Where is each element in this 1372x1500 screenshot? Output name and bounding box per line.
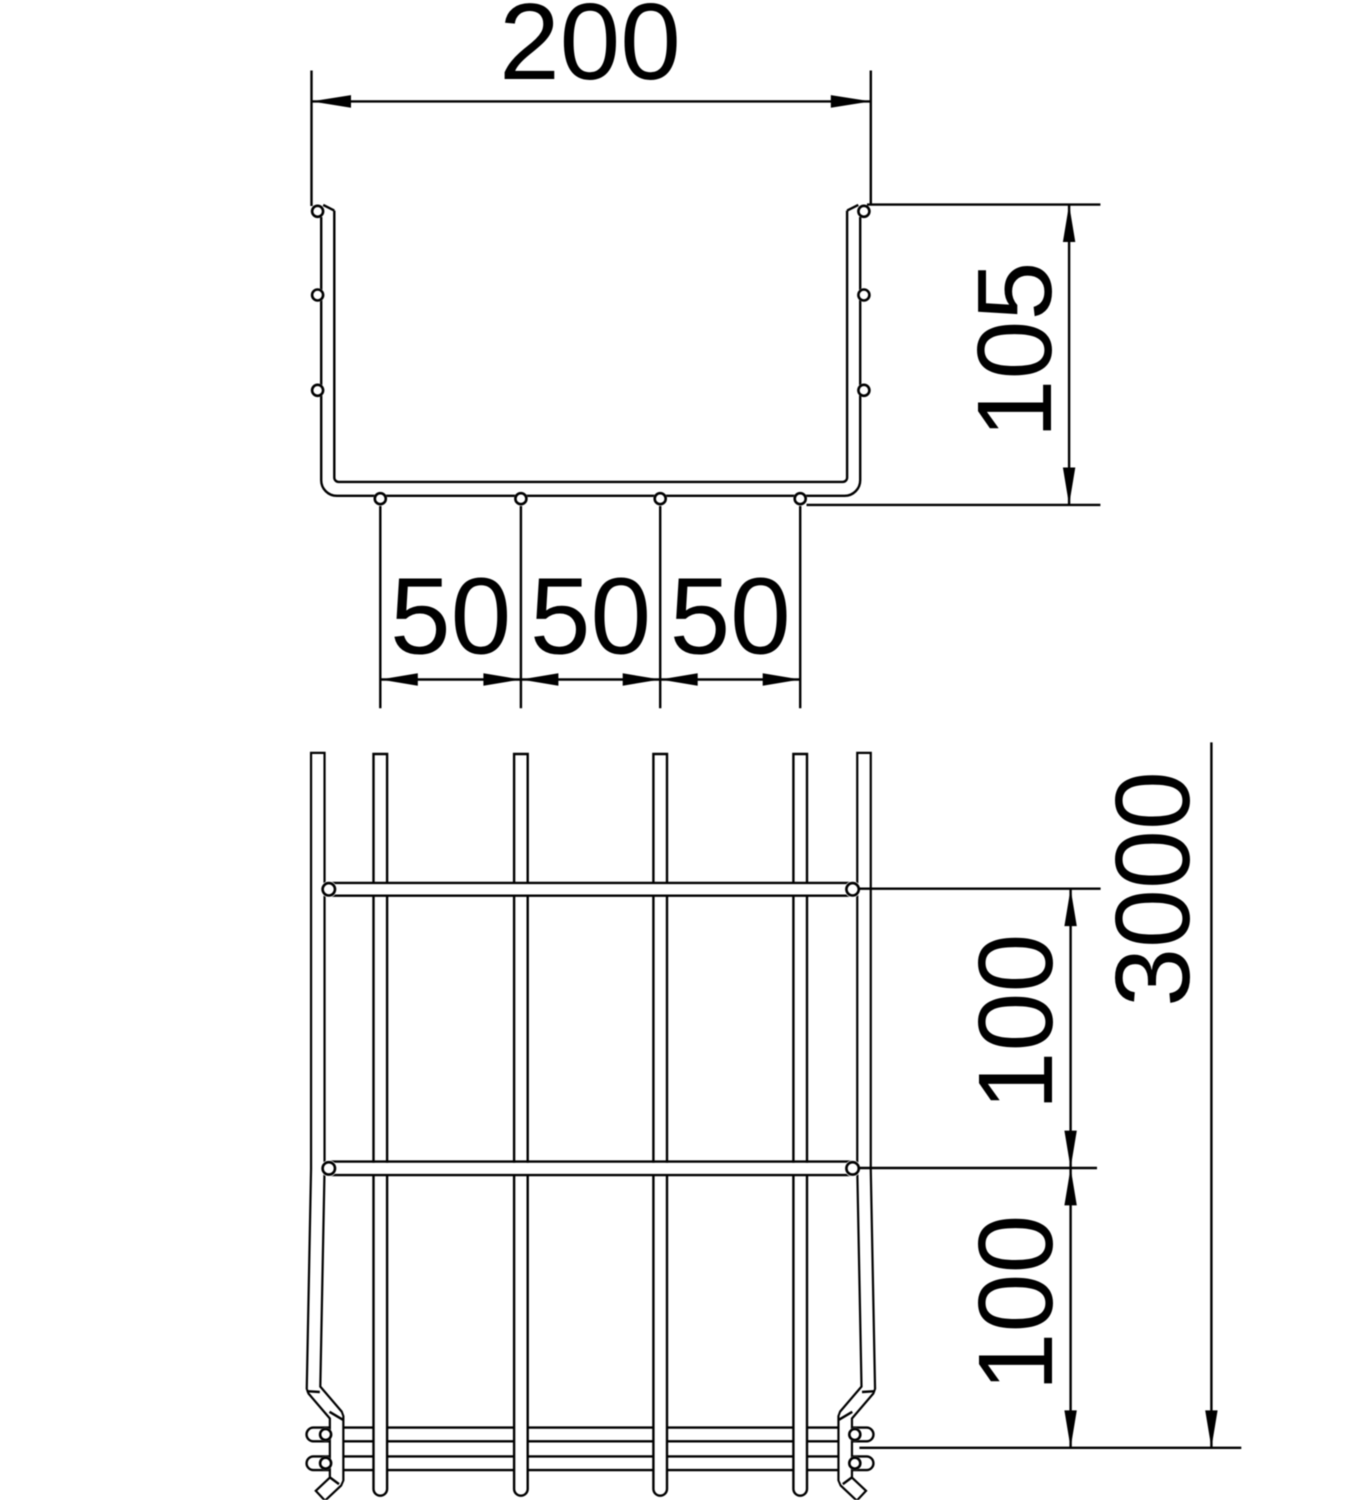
svg-text:100: 100	[957, 1215, 1075, 1392]
svg-text:3000: 3000	[1094, 771, 1212, 1007]
svg-text:50: 50	[390, 555, 511, 677]
svg-text:200: 200	[499, 0, 681, 103]
svg-text:50: 50	[530, 555, 651, 677]
svg-text:50: 50	[670, 555, 791, 677]
svg-text:100: 100	[957, 934, 1075, 1111]
svg-text:105: 105	[956, 262, 1074, 439]
